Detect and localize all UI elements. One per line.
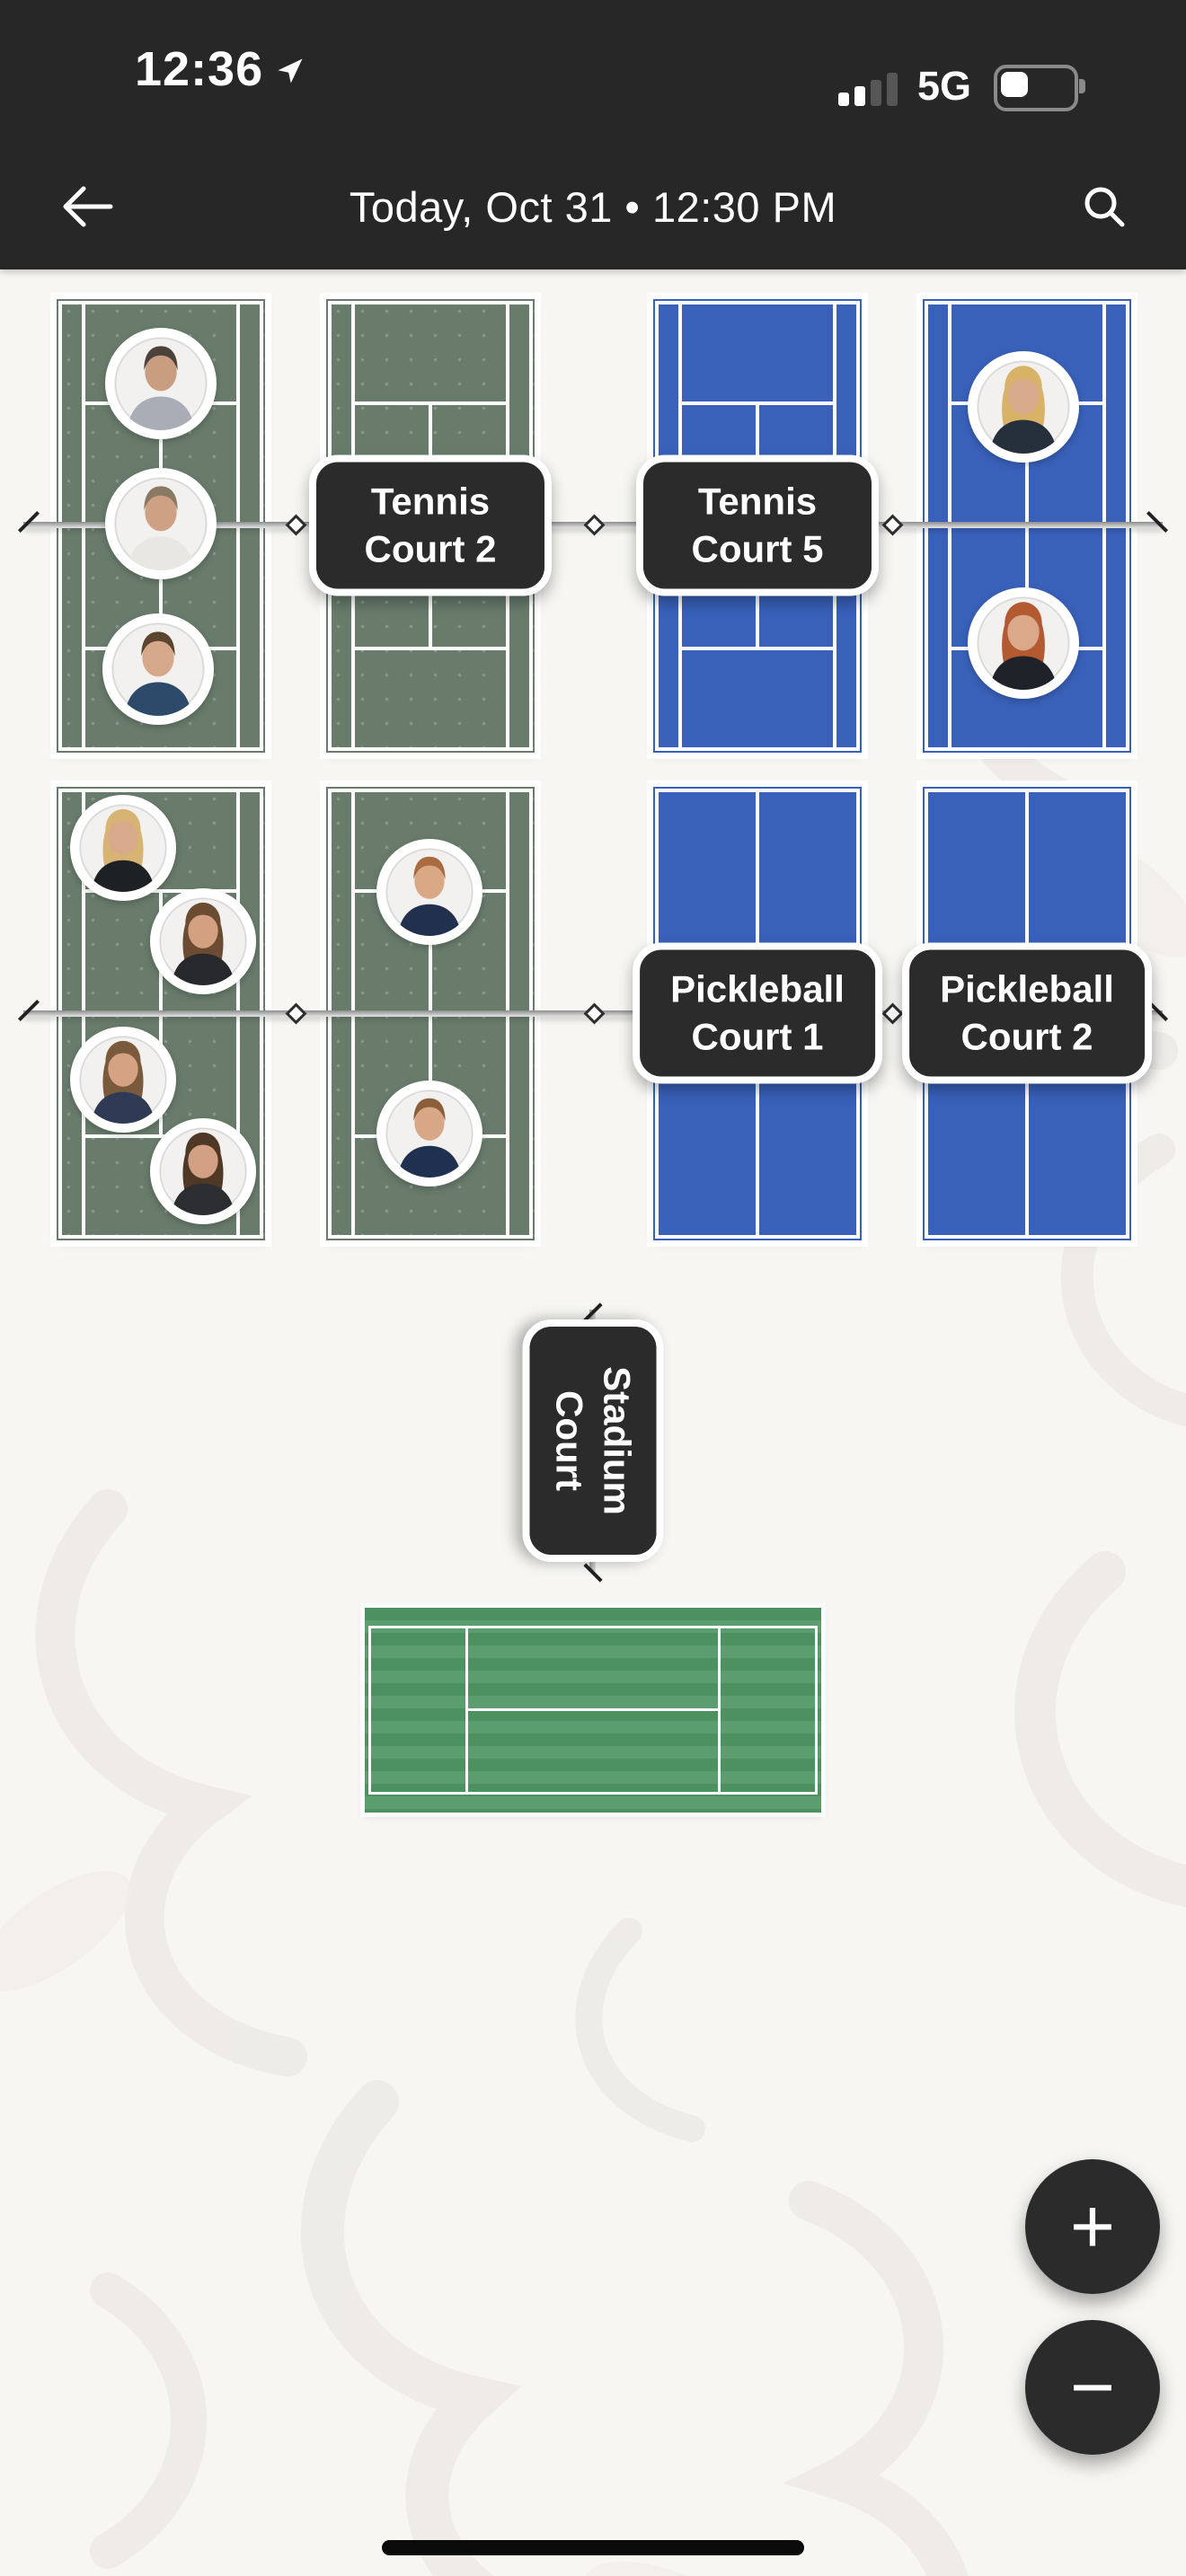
label-line1: Tennis — [674, 479, 841, 526]
network-type-label: 5G — [917, 63, 971, 110]
signal-strength-icon — [838, 70, 907, 106]
label-tennis-court-2[interactable]: Tennis Court 2 — [309, 455, 552, 596]
player-avatar[interactable] — [102, 613, 214, 725]
search-icon — [1080, 182, 1128, 231]
label-stadium-court[interactable]: Stadium Court — [523, 1319, 664, 1562]
search-button[interactable] — [1064, 169, 1145, 244]
net-post-marker — [285, 1002, 306, 1024]
location-arrow-icon — [274, 55, 306, 87]
player-avatar[interactable] — [150, 1118, 256, 1224]
label-line2: Court 2 — [347, 525, 514, 573]
label-line2: Court 2 — [940, 1013, 1114, 1061]
net-post-marker — [881, 1002, 903, 1024]
label-line2: Court 1 — [670, 1013, 845, 1061]
label-line1: Stadium — [593, 1357, 641, 1524]
home-indicator[interactable] — [382, 2540, 804, 2555]
label-line1: Tennis — [347, 479, 514, 526]
court-map[interactable]: Tennis Court 2 Tennis Court 5 Pickleball… — [0, 269, 1186, 2576]
player-avatar[interactable] — [70, 795, 176, 901]
net-post-marker — [583, 1002, 605, 1024]
label-pickleball-court-1[interactable]: Pickleball Court 1 — [633, 943, 882, 1084]
label-line1: Pickleball — [670, 966, 845, 1014]
net-post-marker — [881, 514, 903, 535]
player-avatar[interactable] — [105, 468, 217, 579]
battery-icon — [994, 65, 1078, 111]
player-avatar[interactable] — [376, 839, 482, 945]
minus-icon: − — [1070, 2349, 1115, 2426]
net-post-marker — [285, 514, 306, 535]
player-avatar[interactable] — [150, 888, 256, 994]
label-line1: Pickleball — [940, 966, 1114, 1014]
app-screen: Tennis Court 2 Tennis Court 5 Pickleball… — [0, 0, 1186, 2576]
plus-icon: + — [1070, 2188, 1115, 2265]
status-bar: 12:36 5G — [0, 36, 1186, 108]
zoom-in-button[interactable]: + — [1025, 2159, 1160, 2294]
label-line2: Court — [546, 1357, 594, 1524]
zoom-out-button[interactable]: − — [1025, 2320, 1160, 2455]
label-line2: Court 5 — [674, 525, 841, 573]
player-avatar[interactable] — [70, 1027, 176, 1133]
header: Today, Oct 31 • 12:30 PM — [0, 144, 1186, 269]
player-avatar[interactable] — [105, 328, 217, 439]
player-avatar[interactable] — [376, 1081, 482, 1187]
label-tennis-court-5[interactable]: Tennis Court 5 — [636, 455, 879, 596]
label-pickleball-court-2[interactable]: Pickleball Court 2 — [902, 943, 1152, 1084]
status-time: 12:36 — [135, 41, 306, 97]
player-avatar[interactable] — [968, 351, 1079, 463]
net-post-marker — [583, 514, 605, 535]
player-avatar[interactable] — [968, 587, 1079, 699]
top-bar: 12:36 5G Today, Oct 31 • 12:30 PM — [0, 0, 1186, 269]
page-title: Today, Oct 31 • 12:30 PM — [0, 144, 1186, 269]
court-stadium[interactable] — [365, 1608, 821, 1813]
